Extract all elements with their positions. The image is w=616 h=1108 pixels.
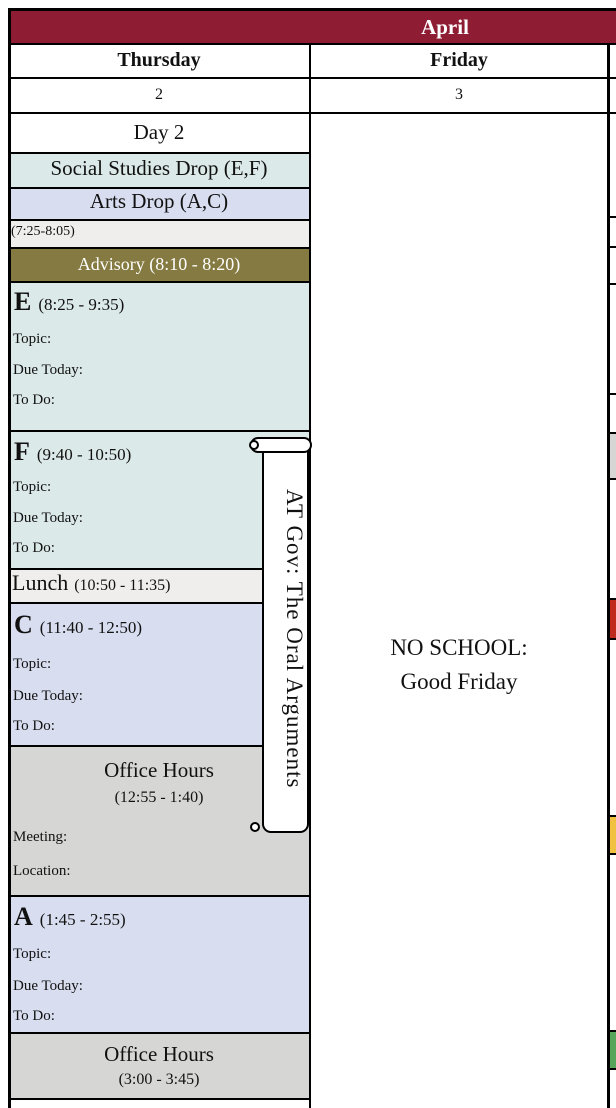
block-e-time: (8:25 - 9:35) (38, 295, 124, 314)
block-a-time: (1:45 - 2:55) (40, 910, 126, 929)
field-to-do: To Do: (13, 717, 55, 735)
field-due-today: Due Today: (13, 509, 83, 527)
lunch-time: (10:50 - 11:35) (74, 577, 170, 594)
block-f-time: (9:40 - 10:50) (37, 445, 131, 464)
banner-text: AT Gov: The Oral Arguments (264, 447, 307, 831)
field-topic: Topic: (13, 478, 51, 496)
grid-line (8, 430, 310, 432)
banner-scroll[interactable]: AT Gov: The Oral Arguments (262, 445, 309, 833)
office-hours-2-time: (3:00 - 3:45) (8, 1070, 310, 1089)
sliver-event-yellow (610, 817, 616, 853)
no-school-note: NO SCHOOL: Good Friday (310, 631, 608, 699)
block-a-letter: A (14, 902, 33, 931)
block-c-title: C(11:40 - 12:50) (14, 609, 142, 640)
block-f-title: F(9:40 - 10:50) (14, 436, 131, 467)
field-due-today: Due Today: (13, 361, 83, 379)
no-school-line-2: Good Friday (310, 665, 608, 699)
planner-page: April Thursday Friday 2 3 Day 2 Social S… (0, 0, 616, 1108)
date-cell-thursday[interactable]: 2 (8, 77, 310, 112)
field-due-today: Due Today: (13, 977, 83, 995)
block-a-title: A(1:45 - 2:55) (14, 901, 126, 932)
grid-line (8, 281, 310, 283)
grid-line (8, 152, 310, 154)
field-to-do: To Do: (13, 1007, 55, 1025)
field-meeting: Meeting: (13, 828, 67, 846)
field-location: Location: (13, 862, 70, 880)
grid-line (607, 43, 610, 1108)
grid-line (8, 1032, 310, 1034)
sliver-event-green (610, 1032, 616, 1068)
grid-line (8, 1098, 310, 1100)
lunch-label-row: Lunch(10:50 - 11:35) (12, 570, 170, 596)
grid-line (8, 8, 616, 11)
block-c-time: (11:40 - 12:50) (40, 618, 142, 637)
scroll-curl-top-icon (249, 440, 259, 450)
sliver-event-red (610, 600, 616, 638)
office-hours-2-title: Office Hours (8, 1042, 310, 1067)
date-cell-friday[interactable]: 3 (310, 77, 608, 112)
social-studies-drop-label: Social Studies Drop (E,F) (8, 156, 310, 181)
block-c-letter: C (14, 610, 33, 639)
lunch-label: Lunch (12, 570, 68, 595)
scroll-roll-bar (250, 437, 312, 453)
field-topic: Topic: (13, 655, 51, 673)
block-f-letter: F (14, 437, 30, 466)
field-topic: Topic: (13, 330, 51, 348)
arts-drop-label: Arts Drop (A,C) (8, 189, 310, 214)
field-topic: Topic: (13, 945, 51, 963)
month-title: April (300, 15, 590, 40)
day-cycle-label: Day 2 (8, 120, 310, 145)
no-school-line-1: NO SCHOOL: (310, 631, 608, 665)
grid-line (8, 219, 310, 221)
grid-line (8, 895, 310, 897)
day-header-friday: Friday (310, 43, 608, 77)
sliver-event-gray (610, 434, 616, 478)
block-e-title: E(8:25 - 9:35) (14, 286, 124, 317)
field-to-do: To Do: (13, 391, 55, 409)
field-to-do: To Do: (13, 539, 55, 557)
field-due-today: Due Today: (13, 687, 83, 705)
block-e-letter: E (14, 287, 31, 316)
day-header-thursday: Thursday (8, 43, 310, 77)
grid-line (8, 112, 616, 114)
scroll-curl-bottom-icon (250, 822, 260, 832)
advisory-label: Advisory (8:10 - 8:20) (8, 247, 310, 281)
early-slot-time: (7:25-8:05) (11, 224, 301, 241)
